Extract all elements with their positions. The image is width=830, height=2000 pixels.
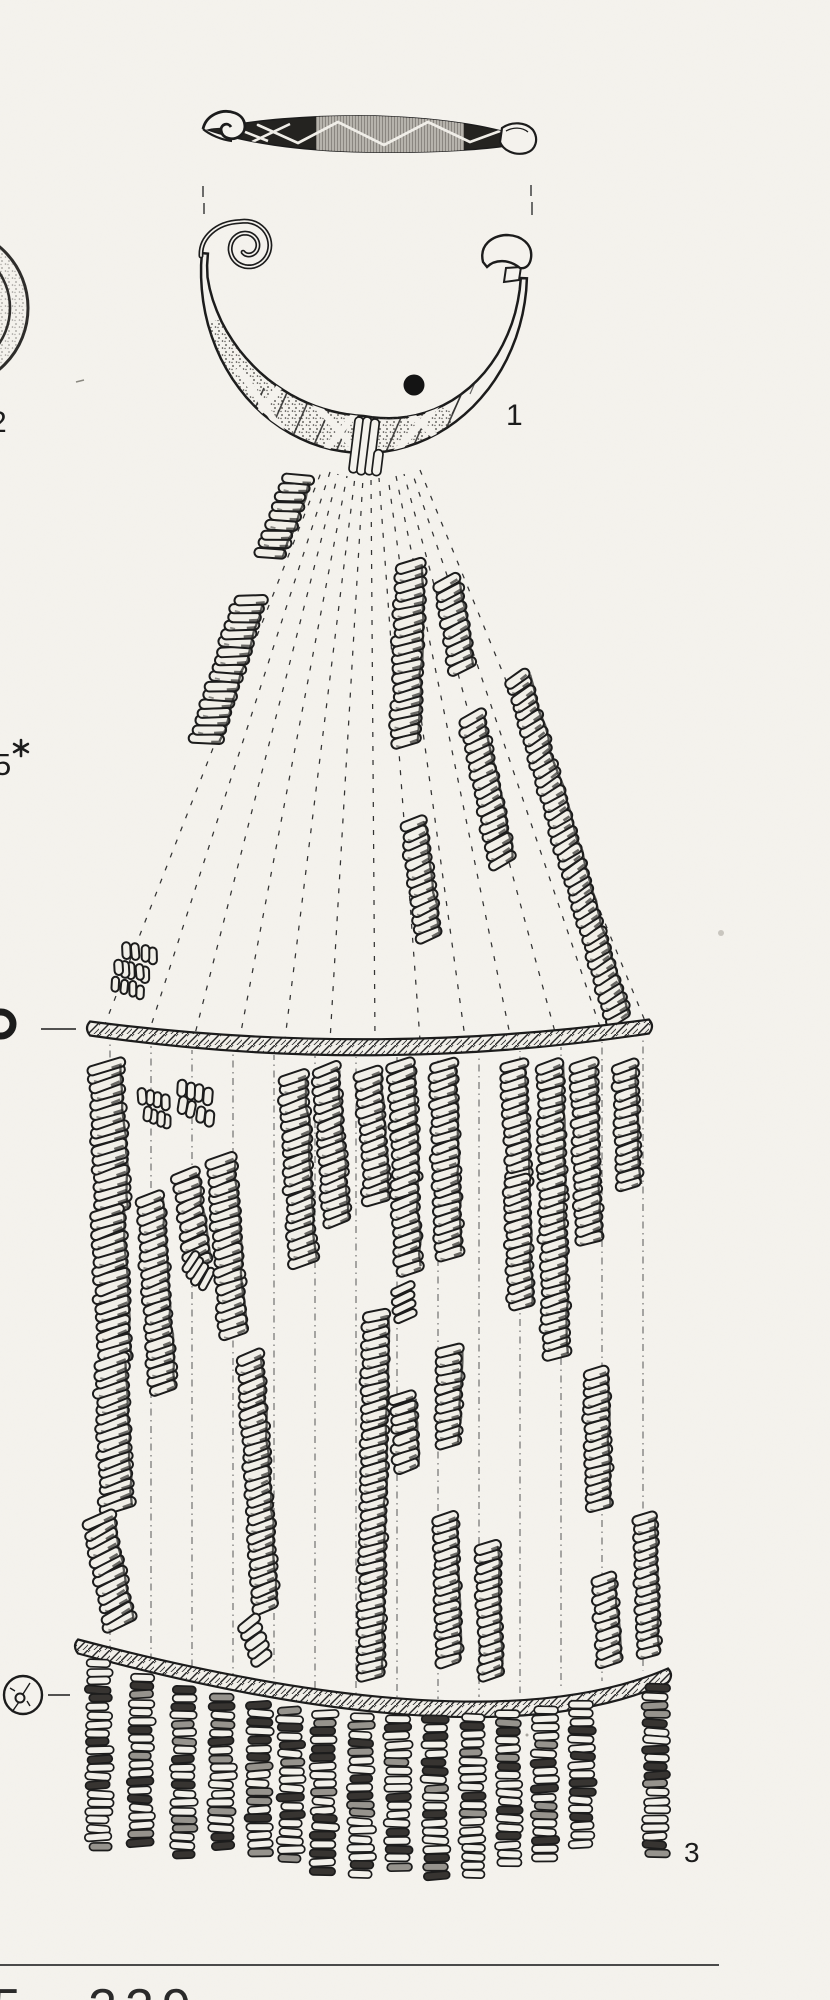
svg-text:229: 229 [88, 1979, 199, 2000]
svg-text:3: 3 [684, 1837, 700, 1868]
svg-text:5: 5 [0, 1979, 21, 2000]
svg-text:5: 5 [0, 747, 11, 782]
svg-text:1: 1 [506, 399, 523, 432]
svg-text:2: 2 [0, 406, 7, 439]
